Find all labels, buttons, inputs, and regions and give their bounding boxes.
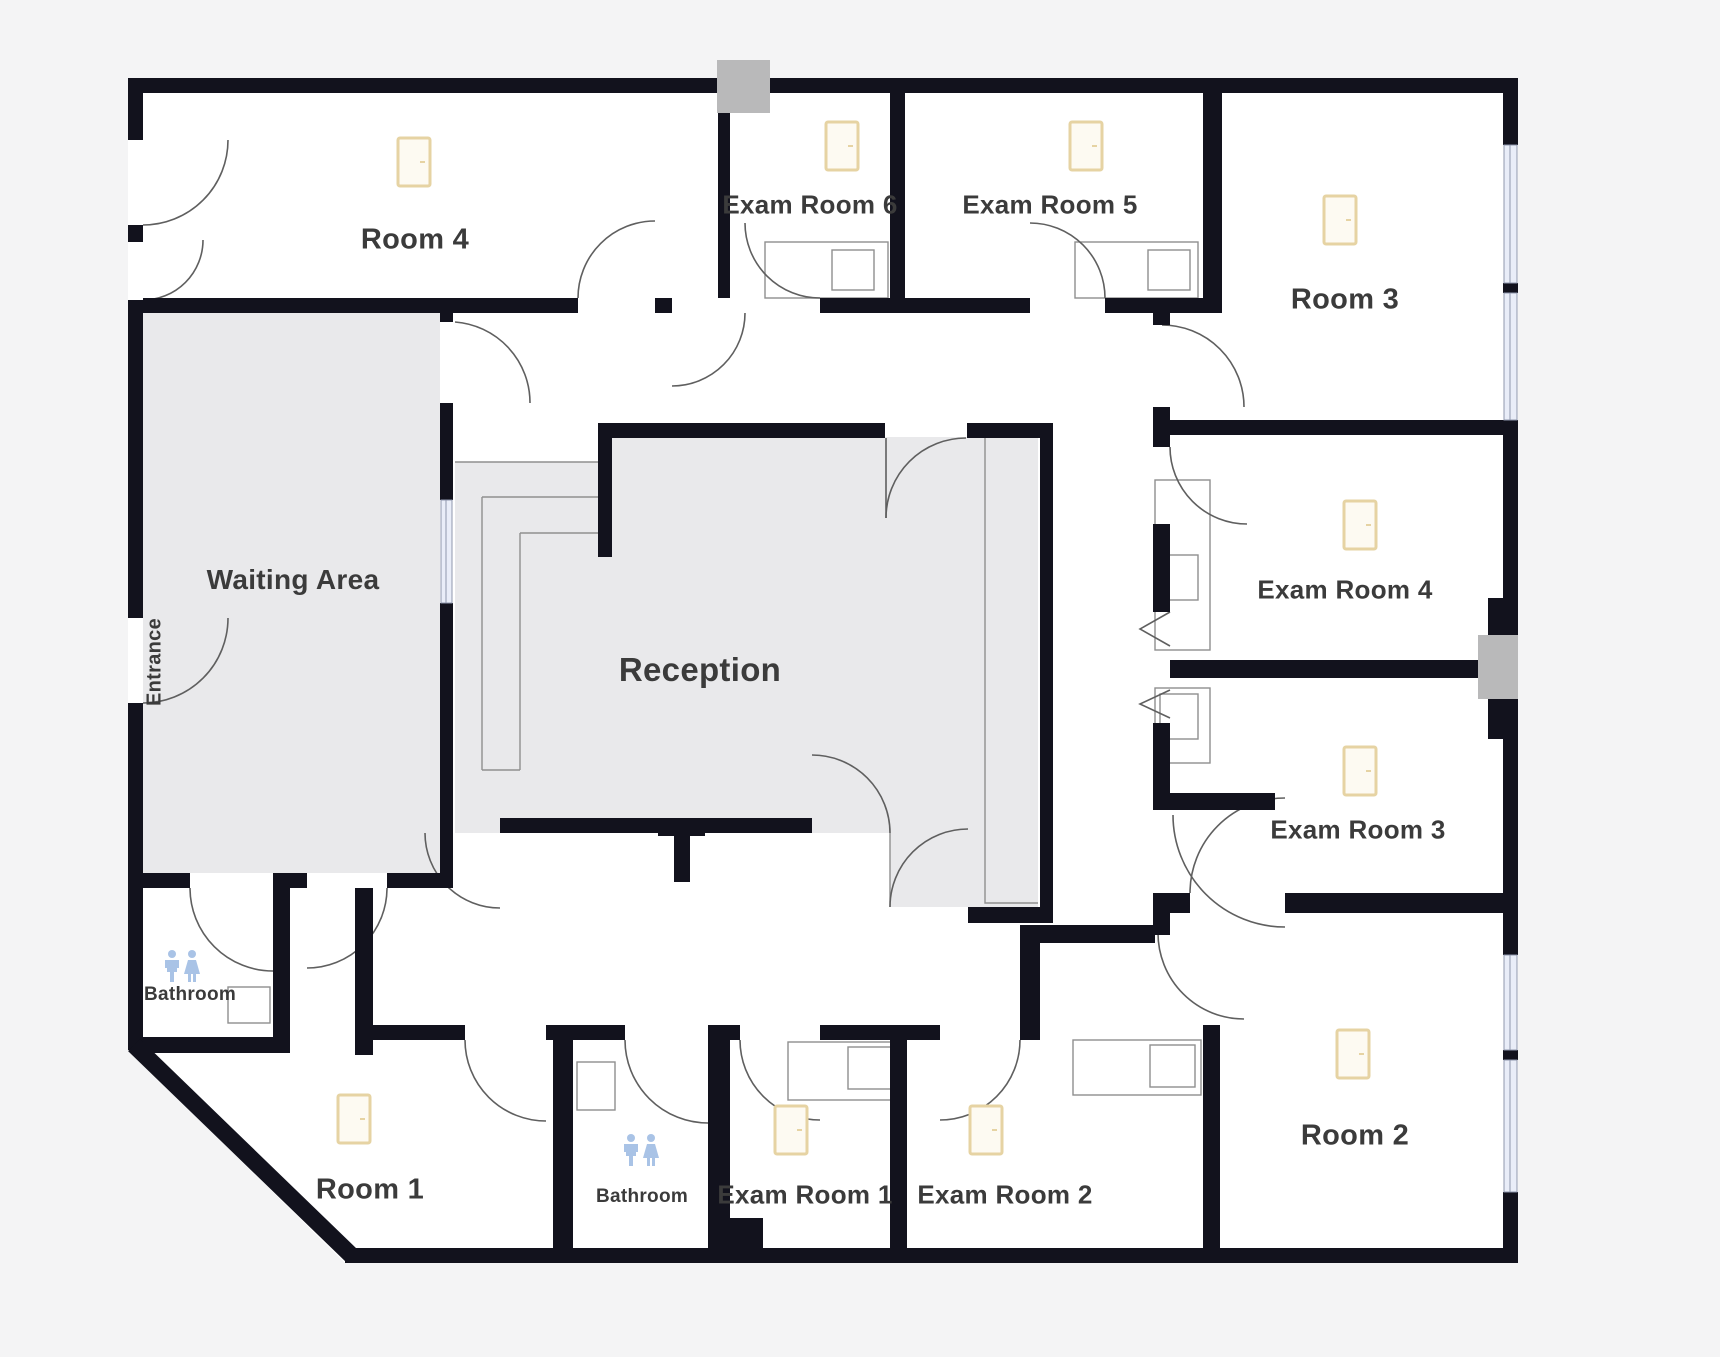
reception-label: Reception xyxy=(619,651,781,689)
door-icon-room-4 xyxy=(398,138,430,186)
exam-room-5-label: Exam Room 5 xyxy=(962,190,1137,221)
bathroom-lower-label: Bathroom xyxy=(596,1186,688,1208)
exam-room-6-label: Exam Room 6 xyxy=(722,190,897,221)
door-icon-room-2 xyxy=(1337,1030,1369,1078)
floor-plan: Room 4 Exam Room 6 Exam Room 5 Room 3 Wa… xyxy=(0,0,1720,1357)
exam-room-3-label: Exam Room 3 xyxy=(1270,815,1445,846)
door-icon-exam-room-6 xyxy=(826,122,858,170)
exam-room-1-counter xyxy=(788,1042,905,1100)
exam-room-5-counter xyxy=(1075,242,1198,298)
exam-room-4-label: Exam Room 4 xyxy=(1257,575,1432,606)
door-icon-exam-room-4 xyxy=(1344,501,1376,549)
exam-room-2-counter xyxy=(1073,1040,1201,1095)
room-1-label: Room 1 xyxy=(316,1174,424,1207)
door-icon-exam-room-5 xyxy=(1070,122,1102,170)
exam-room-1-label: Exam Room 1 xyxy=(717,1180,892,1211)
entrance-label: Entrance xyxy=(144,618,167,706)
bathroom-lower-sink xyxy=(577,1062,615,1110)
door-icon-exam-room-3 xyxy=(1344,747,1376,795)
exam-room-2-label: Exam Room 2 xyxy=(917,1180,1092,1211)
room-2-label: Room 2 xyxy=(1301,1120,1409,1153)
door-icon-room-1 xyxy=(338,1095,370,1143)
room-3-label: Room 3 xyxy=(1291,284,1399,317)
room-4-label: Room 4 xyxy=(361,224,469,257)
door-icon-exam-room-1 xyxy=(775,1106,807,1154)
door-icon-room-3 xyxy=(1324,196,1356,244)
door-icon-exam-room-2 xyxy=(970,1106,1002,1154)
bathroom-upper-label: Bathroom xyxy=(144,984,236,1006)
waiting-area-label: Waiting Area xyxy=(207,564,380,596)
